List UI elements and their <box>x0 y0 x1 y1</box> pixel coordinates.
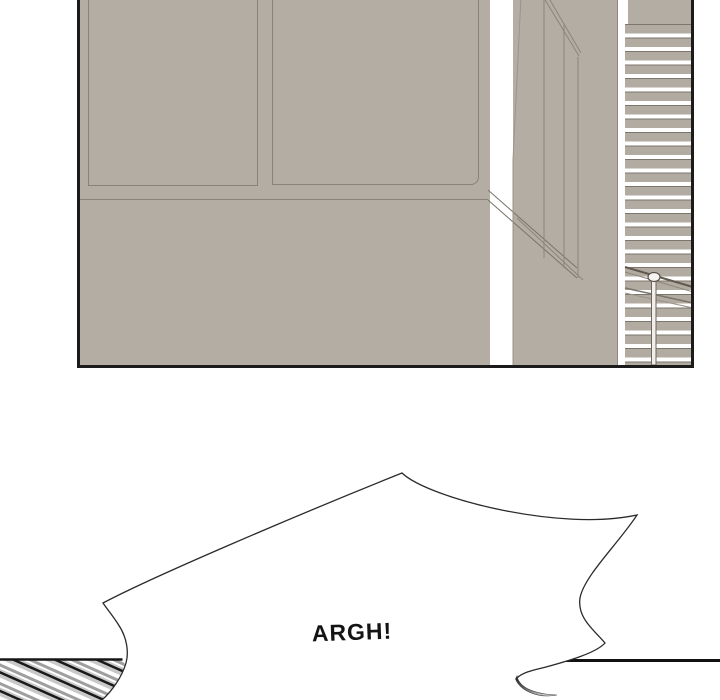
speech-bubble-text: ARGH! <box>296 616 409 648</box>
handrail-knob <box>648 273 660 282</box>
bubble-curl-shadow <box>516 676 558 696</box>
handrail-post <box>652 280 657 365</box>
speech-bubble-fill <box>102 473 637 700</box>
door-frame-lines <box>513 0 583 365</box>
bottom-panels-art <box>0 440 720 700</box>
panel-line-art <box>80 0 691 365</box>
scene-panel <box>77 0 694 368</box>
speed-lines <box>0 659 125 700</box>
